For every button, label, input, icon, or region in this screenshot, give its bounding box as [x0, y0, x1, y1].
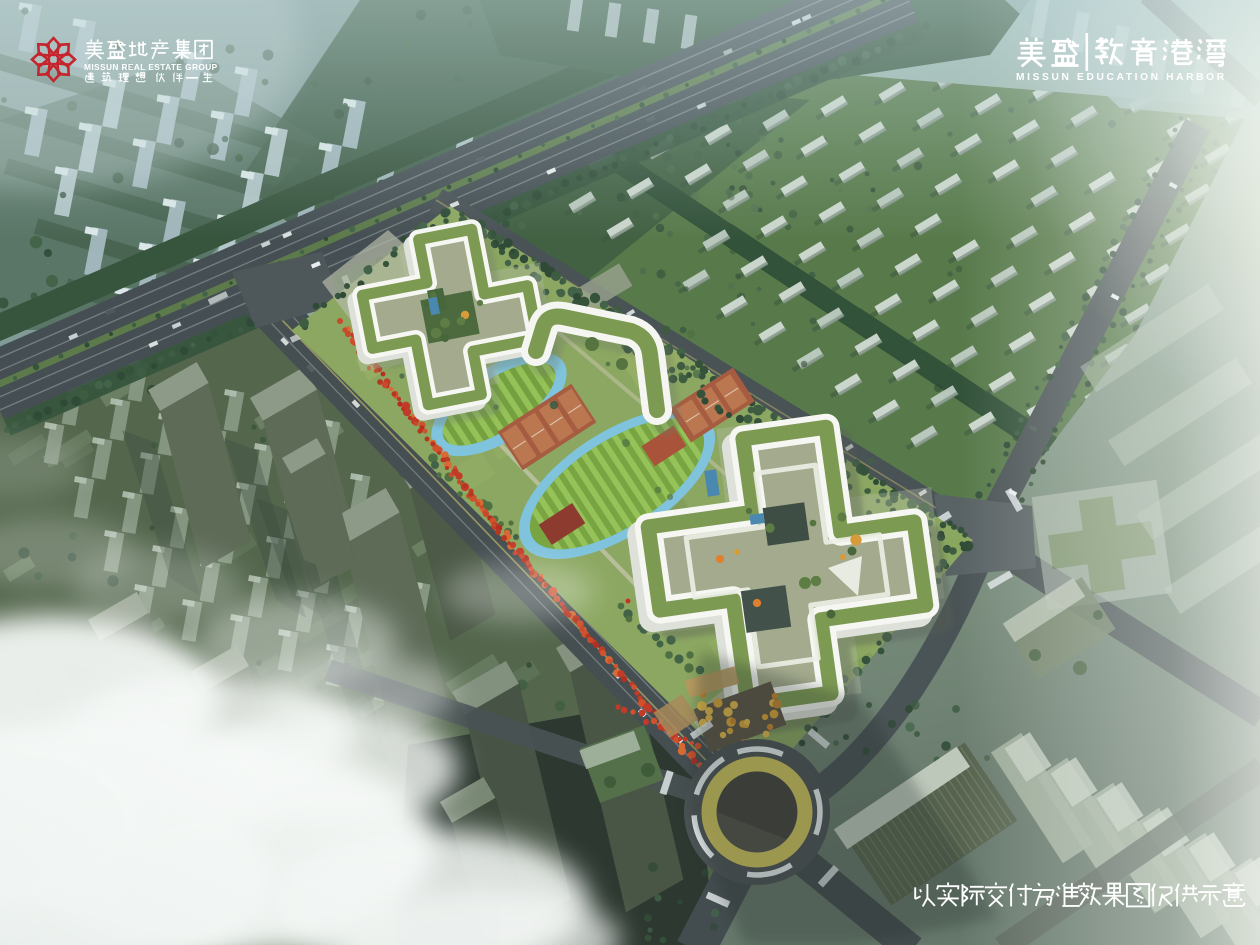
svg-text:MISSUN REAL ESTATE GROUP: MISSUN REAL ESTATE GROUP: [84, 62, 218, 72]
svg-text:MISSUN EDUCATION HARBOR: MISSUN EDUCATION HARBOR: [1016, 72, 1227, 83]
